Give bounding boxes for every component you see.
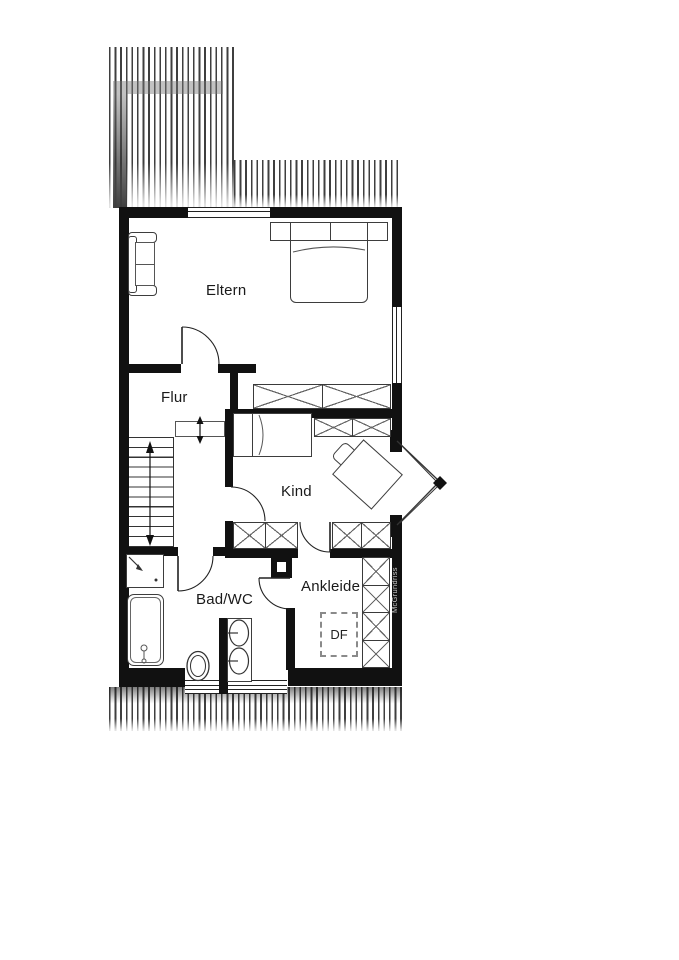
door-eltern <box>182 327 219 364</box>
door-bad <box>178 556 213 591</box>
headroom-arrow <box>197 416 204 444</box>
bathtub-drain <box>141 645 147 663</box>
room-label-ankleide: Ankleide <box>301 578 360 595</box>
toilet <box>187 652 209 681</box>
stairs-direction-arrow <box>146 441 154 546</box>
room-label-eltern: Eltern <box>206 282 246 299</box>
room-label-bad: Bad/WC <box>196 591 253 608</box>
washbasin <box>228 620 249 646</box>
door-ankleide-north <box>300 522 330 552</box>
door-ankleide-west <box>259 578 290 609</box>
door-kind <box>231 487 265 521</box>
room-label-flur: Flur <box>161 389 188 406</box>
washbasin <box>228 648 249 674</box>
bay-window <box>397 441 447 525</box>
bed-kind-blanket-line <box>259 415 263 455</box>
room-label-kind: Kind <box>281 483 312 500</box>
shower-symbol <box>129 557 158 582</box>
linework-layer <box>0 0 679 960</box>
watermark: McGrundriss <box>390 553 400 613</box>
bed-eltern-blanket-line <box>293 247 365 252</box>
floor-plan: DF <box>0 0 679 960</box>
